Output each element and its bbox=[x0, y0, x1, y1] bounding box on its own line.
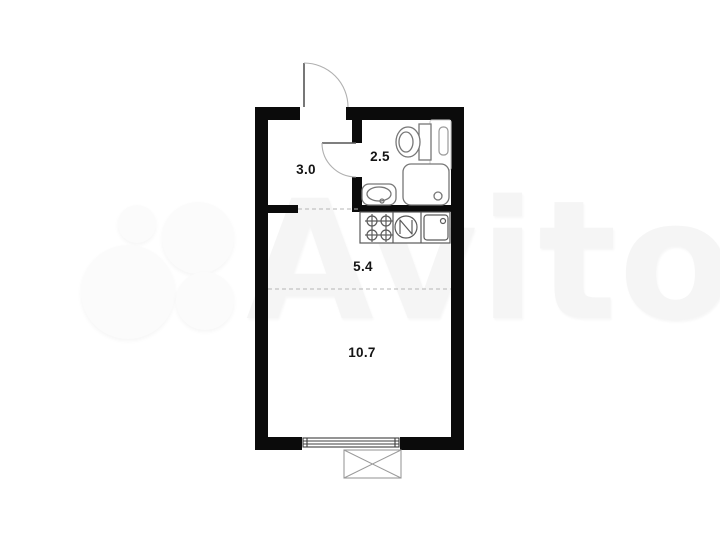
floorplan-drawing: 3.0 2.5 5.4 10.7 bbox=[0, 0, 720, 540]
room-label-bathroom: 2.5 bbox=[370, 149, 390, 164]
window bbox=[302, 437, 400, 450]
wash-basin-icon bbox=[362, 184, 396, 205]
room-label-living: 10.7 bbox=[348, 345, 375, 360]
entrance-door bbox=[304, 63, 348, 107]
bathroom-door bbox=[322, 143, 356, 177]
shower-icon bbox=[403, 164, 449, 205]
room-label-kitchen: 5.4 bbox=[353, 259, 373, 274]
floorplan-image: Avito bbox=[0, 0, 720, 540]
room-label-hallway: 3.0 bbox=[296, 162, 316, 177]
balcony-box bbox=[344, 450, 401, 478]
toilet-icon bbox=[396, 120, 451, 170]
